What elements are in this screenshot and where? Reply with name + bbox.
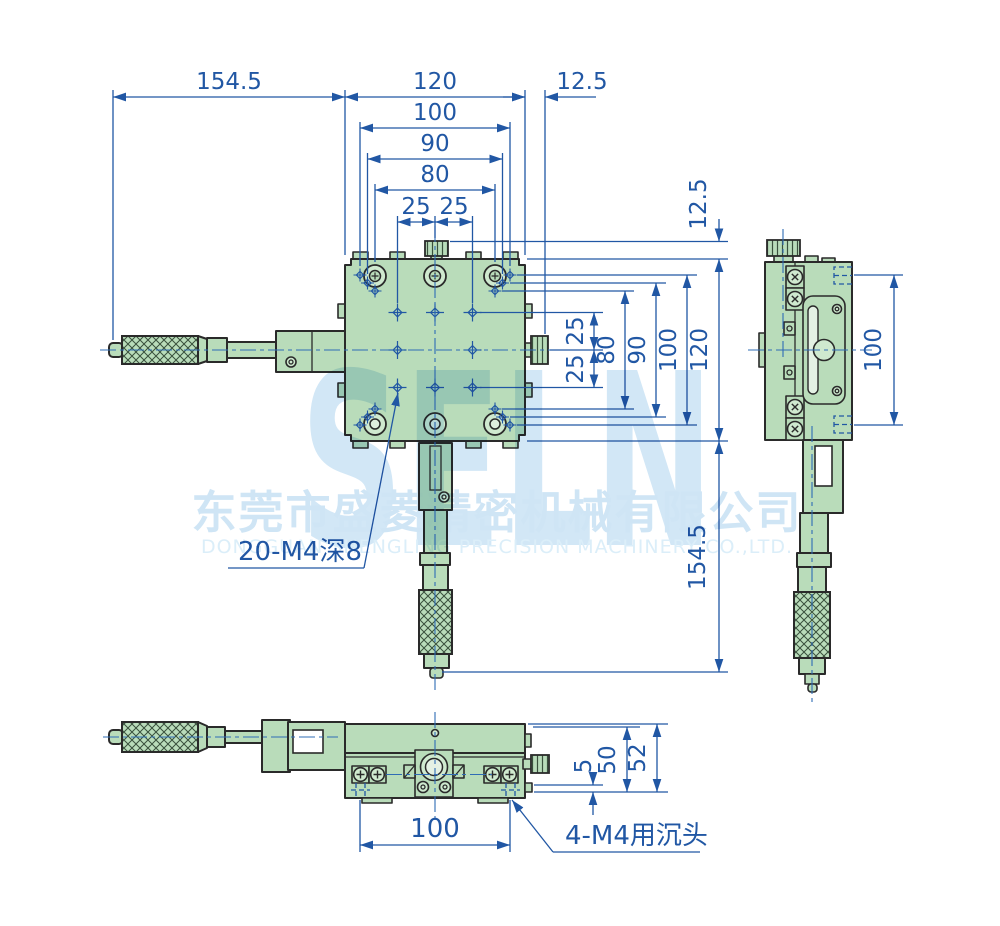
dim-front-100: 100 <box>410 814 460 844</box>
dim-top-25-right: 25 <box>439 194 468 220</box>
dim-front-52: 52 <box>625 743 651 772</box>
watermark-company-en: DONGGUAN SHENGLING PRECISION MACHINERY C… <box>201 536 793 558</box>
xy-stage-drawing: 154.5 120 12.5 100 90 80 25 25 25 25 80 … <box>0 0 1000 926</box>
callout-counterbore: 4-M4用沉头 <box>565 821 708 851</box>
dim-top-25-left: 25 <box>401 194 430 220</box>
top-lock-knob <box>425 241 448 260</box>
dim-side-100: 100 <box>861 328 887 372</box>
dim-top-100: 100 <box>413 100 457 126</box>
dim-top-154-5: 154.5 <box>196 69 262 95</box>
dim-front-50: 50 <box>595 745 621 774</box>
watermark-company-cn: 东莞市盛菱精密机械有限公司 <box>191 486 802 539</box>
dim-top-90: 90 <box>420 131 449 157</box>
technical-drawing-sheet: 154.5 120 12.5 100 90 80 25 25 25 25 80 … <box>0 0 1000 926</box>
front-micrometer <box>109 720 345 772</box>
dim-right-12-5: 12.5 <box>686 178 712 229</box>
dim-top-120: 120 <box>413 69 457 95</box>
front-view <box>103 712 549 820</box>
dim-top-12-5: 12.5 <box>556 69 607 95</box>
front-right-knob <box>523 755 549 773</box>
dim-front-5: 5 <box>571 759 597 774</box>
dim-top-80: 80 <box>420 162 449 188</box>
side-micrometer <box>794 440 843 692</box>
side-view <box>748 229 872 703</box>
watermark-logo: SELN <box>300 322 714 602</box>
